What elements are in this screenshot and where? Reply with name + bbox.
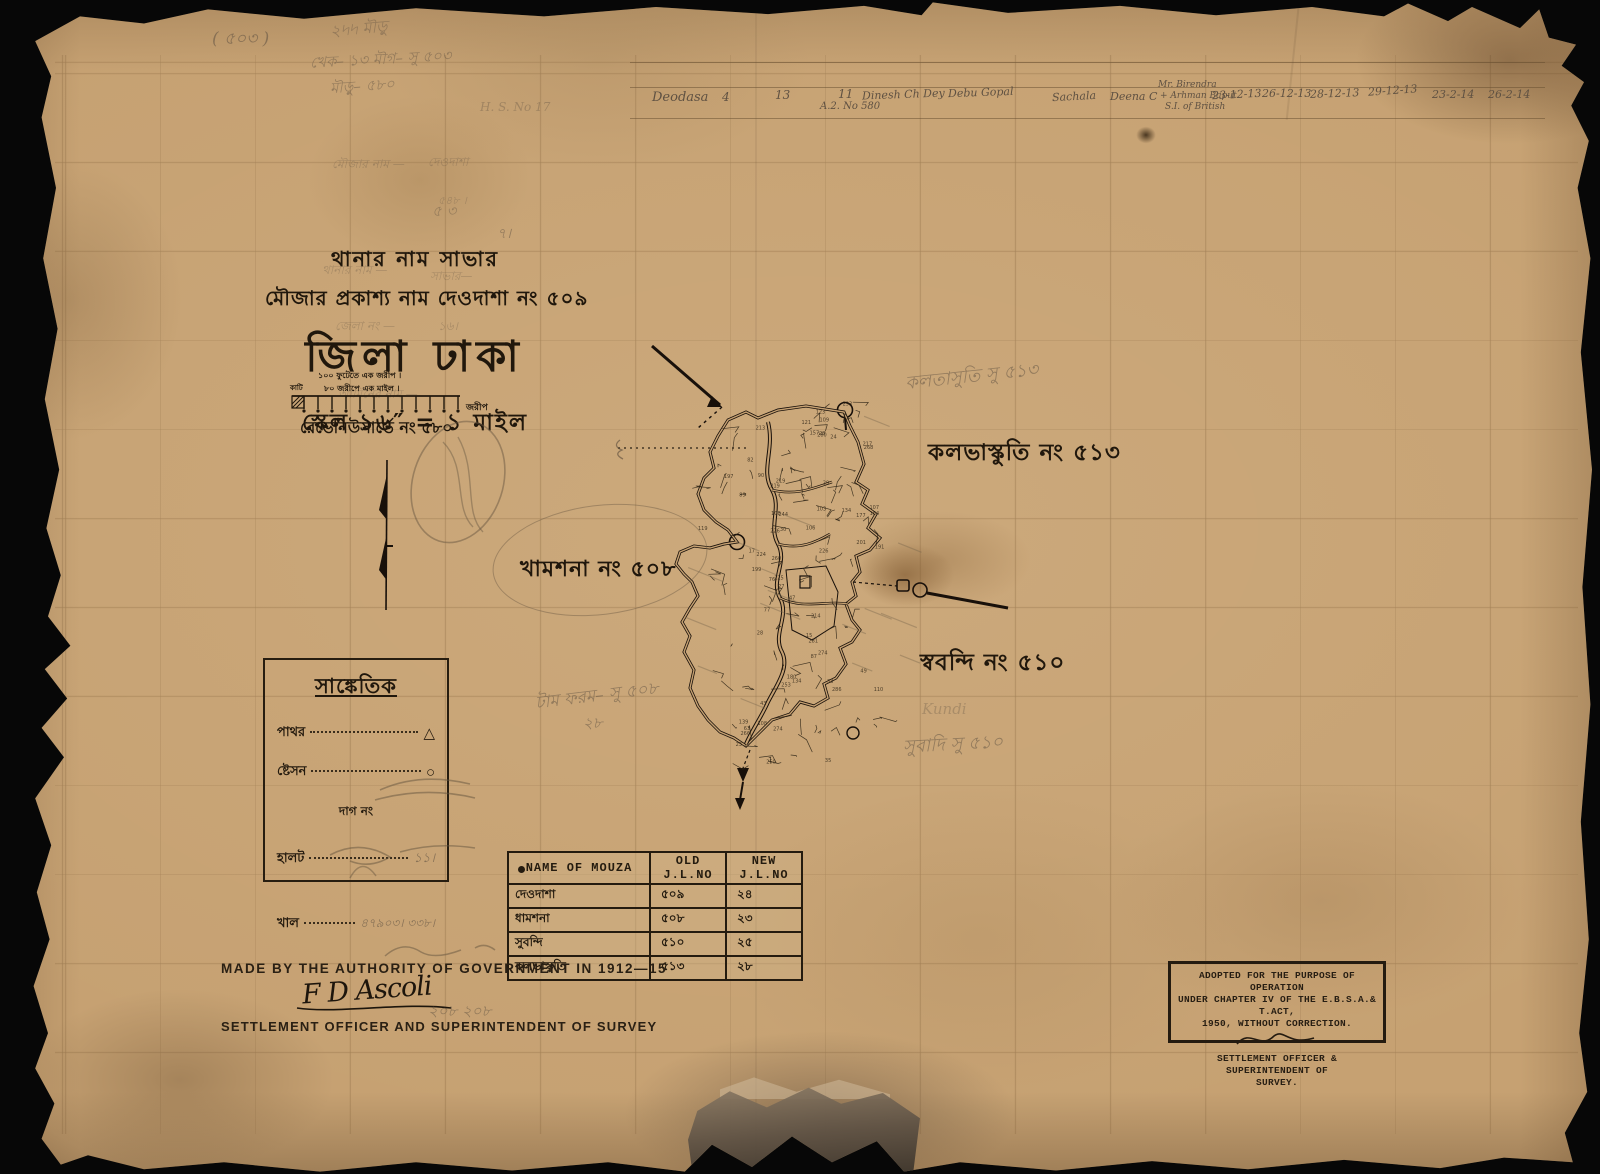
svg-text:87: 87: [811, 654, 817, 660]
svg-text:217: 217: [863, 442, 873, 448]
svg-text:180: 180: [787, 675, 797, 681]
parcel-lines: 2882197219213299022689119171082602242442…: [692, 402, 897, 770]
svg-text:28: 28: [757, 630, 763, 636]
table-row: সুবন্দি ৫১০ ২৫: [508, 932, 802, 956]
survey-cell: Sachala: [1052, 89, 1097, 104]
legend-title: সাঙ্কেতিক: [277, 670, 435, 705]
svg-text:286: 286: [832, 687, 842, 693]
mouza-name-cell: দেওদাশা: [508, 884, 650, 908]
legend-row-khal: খাল ৪৭৯০৩। ৩৩৮।: [277, 914, 435, 935]
legend-label: খাল: [277, 914, 299, 935]
svg-text:82: 82: [747, 458, 753, 464]
svg-text:226: 226: [819, 548, 829, 554]
survey-date: 23-2-14: [1432, 88, 1474, 101]
pencil-hatching: [685, 416, 921, 708]
map-label-kalbhaskuti: কলভাস্কুতি নং ৫১৩: [928, 434, 1121, 473]
new-jl-cell: ২৪: [726, 884, 802, 908]
table-row: দেওদাশা ৫০৯ ২৪: [508, 884, 802, 908]
pencil-scribble-oval: [398, 412, 518, 552]
svg-text:77: 77: [764, 608, 770, 614]
map-label-subandi: স্ববন্দি নং ৫১০: [920, 644, 1065, 683]
svg-text:260: 260: [772, 556, 782, 562]
map-label-pencil: Kundi: [922, 700, 967, 718]
officer-title-line: SETTLEMENT OFFICER AND SUPERINTENDENT OF…: [221, 1019, 657, 1034]
svg-text:226: 226: [770, 529, 780, 535]
traverse-line-nw: [652, 346, 720, 405]
svg-text:23: 23: [736, 742, 742, 748]
col-name-of-mouza: NAME OF MOUZA: [508, 852, 650, 884]
mouza-name-line: মৌজার প্রকাশ্য নাম দেওদাশা নং ৫০৯: [265, 284, 565, 317]
map-label-pencil: সুবাদি সু ৫১০: [902, 727, 1004, 763]
svg-text:30: 30: [780, 527, 786, 533]
arrowhead-icon: [735, 798, 745, 810]
pencil-squiggle: [380, 938, 500, 964]
survey-cell: 4: [722, 90, 730, 104]
svg-text:35: 35: [825, 758, 831, 764]
svg-text:250: 250: [766, 760, 776, 766]
svg-text:225: 225: [774, 576, 784, 582]
svg-text:281: 281: [809, 638, 819, 644]
svg-text:107: 107: [870, 505, 880, 511]
thana-name-line: থানার নাম সাভার: [265, 243, 565, 278]
traverse-mark-icon: [737, 768, 749, 782]
svg-text:139: 139: [739, 720, 749, 726]
dotted-leader: [304, 922, 355, 924]
svg-text:214: 214: [811, 614, 821, 620]
scale-bar-left-label: কাটি: [289, 382, 304, 392]
svg-text:191: 191: [875, 544, 885, 550]
survey-date: 26-12-13: [1262, 87, 1311, 100]
mouza-name-cell: সুবন্দি: [508, 932, 650, 956]
scale-bar-line1: ১০০ ফুটেতে এক জরীপ ।: [318, 369, 401, 381]
svg-text:29: 29: [823, 480, 829, 486]
survey-cell: A.2. No 580: [820, 101, 880, 112]
svg-text:274: 274: [773, 726, 783, 732]
dotted-leader: [310, 731, 418, 733]
survey-cell: S.I. of British: [1165, 102, 1225, 112]
old-jl-cell: ৫১০: [650, 932, 726, 956]
scale-bar-line2: ৮০ জরীপে এক মাইল ।: [323, 382, 400, 393]
pencil-annotation: মৗড়ু– ৫৮০: [329, 73, 395, 102]
svg-text:49: 49: [860, 669, 866, 675]
paper-tear: [688, 1084, 920, 1174]
old-jl-cell: ৫০৯: [650, 884, 726, 908]
svg-text:89: 89: [739, 493, 745, 499]
svg-text:63: 63: [744, 726, 750, 732]
map-label-pencil: ২৮: [583, 712, 603, 737]
pencil-annotation: H. S. No 17: [480, 100, 550, 114]
svg-text:110: 110: [874, 687, 884, 693]
col-old-jl-no: OLD J.L.NO: [650, 852, 726, 884]
pencil-squiggle: [616, 440, 623, 459]
pencil-annotation: দেওদাশা: [428, 154, 468, 174]
survey-table-rule: [630, 62, 1545, 63]
svg-text:103: 103: [817, 506, 827, 512]
svg-text:201: 201: [856, 540, 866, 546]
svg-text:108: 108: [758, 721, 768, 727]
svg-text:213: 213: [756, 426, 766, 432]
survey-date: 23-12-13: [1212, 87, 1262, 103]
svg-text:134: 134: [842, 508, 852, 514]
legend-label: পাথর: [277, 723, 305, 744]
traverse-line-south: [740, 782, 743, 800]
svg-text:109: 109: [820, 417, 830, 423]
table-row: ধামশনা ৫০৮ ২৩: [508, 908, 802, 932]
svg-text:224: 224: [756, 552, 766, 558]
survey-mouza-name: Deodasa: [652, 90, 708, 105]
svg-text:199: 199: [752, 567, 762, 573]
mouza-name-cell: ধামশনা: [508, 908, 650, 932]
survey-date: 26-2-14: [1488, 88, 1530, 101]
survey-cell: 11: [838, 87, 853, 101]
legend-label: ষ্টেসন: [277, 762, 306, 783]
table-bullet-dot: [518, 866, 525, 873]
pencil-note: ৪৭৯০৩। ৩৩৮।: [360, 915, 435, 935]
pencil-annotation: ( ৫০৩ ): [212, 26, 269, 54]
svg-text:253: 253: [781, 682, 791, 688]
pencil-annotation: ২৸৸ মৗড়ু: [329, 14, 389, 46]
survey-cell: Mr. Birendra: [1158, 80, 1217, 90]
station-box-icon: [897, 580, 909, 591]
old-jl-cell: ৫০৮: [650, 908, 726, 932]
svg-text:274: 274: [818, 650, 828, 656]
legend-label: হালট: [277, 849, 304, 870]
stamp-signature: [1232, 1030, 1322, 1048]
survey-date: 28-12-13: [1310, 86, 1360, 101]
survey-cell: 13: [775, 88, 790, 102]
trig-station-icon: [913, 583, 927, 597]
legend-row-stone: পাথর △: [277, 723, 435, 744]
survey-cell: Debu Gopal: [948, 85, 1014, 100]
svg-text:219: 219: [776, 479, 786, 485]
stamp-line: ADOPTED FOR THE PURPOSE OF OPERATION: [1175, 970, 1379, 994]
svg-text:293: 293: [843, 402, 853, 408]
svg-text:280: 280: [817, 432, 827, 438]
svg-text:76: 76: [769, 577, 775, 583]
svg-text:33: 33: [827, 679, 833, 685]
legend-pencil-scribbles: [320, 760, 520, 890]
svg-text:90: 90: [758, 473, 764, 479]
col-new-jl-no: NEW J.L.NO: [726, 852, 802, 884]
svg-text:164: 164: [870, 511, 880, 517]
svg-text:27: 27: [778, 584, 784, 590]
survey-table-rule: [630, 118, 1545, 119]
triangle-symbol-icon: △: [423, 729, 435, 739]
stamp-line: UNDER CHAPTER IV OF THE E.B.S.A.& T.ACT,: [1175, 994, 1379, 1018]
new-jl-cell: ২৩: [726, 908, 802, 932]
north-symbol: [374, 460, 400, 612]
stamp-line: 1950, WITHOUT CORRECTION.: [1175, 1018, 1379, 1030]
stamp-line: SURVEY.: [1175, 1077, 1379, 1089]
trig-station-icon: [847, 727, 859, 739]
traverse-line-east: [927, 593, 1008, 608]
survey-cell: Deena C: [1110, 90, 1157, 103]
stamp-line: SETTLEMENT OFFICER & SUPERINTENDENT OF: [1175, 1053, 1379, 1077]
svg-text:121: 121: [802, 420, 812, 426]
svg-text:177: 177: [856, 513, 866, 519]
svg-text:197: 197: [724, 474, 734, 480]
scanned-map-sheet: Deodasa 4 13 11 A.2. No 580 Dinesh Ch De…: [0, 0, 1600, 1174]
paper-sheet: Deodasa 4 13 11 A.2. No 580 Dinesh Ch De…: [0, 0, 1600, 1174]
new-jl-cell: ২৫: [726, 932, 802, 956]
table-header-row: NAME OF MOUZA OLD J.L.NO NEW J.L.NO: [508, 852, 802, 884]
svg-text:244: 244: [779, 512, 789, 518]
new-jl-cell: ২৮: [726, 956, 802, 980]
adoption-stamp: ADOPTED FOR THE PURPOSE OF OPERATION UND…: [1168, 961, 1386, 1043]
pencil-annotation: ৫৪৮ ।: [438, 192, 467, 211]
pencil-annotation: মৌজার নাম —: [332, 156, 405, 176]
svg-text:24: 24: [830, 435, 836, 441]
svg-text:123: 123: [816, 410, 826, 416]
